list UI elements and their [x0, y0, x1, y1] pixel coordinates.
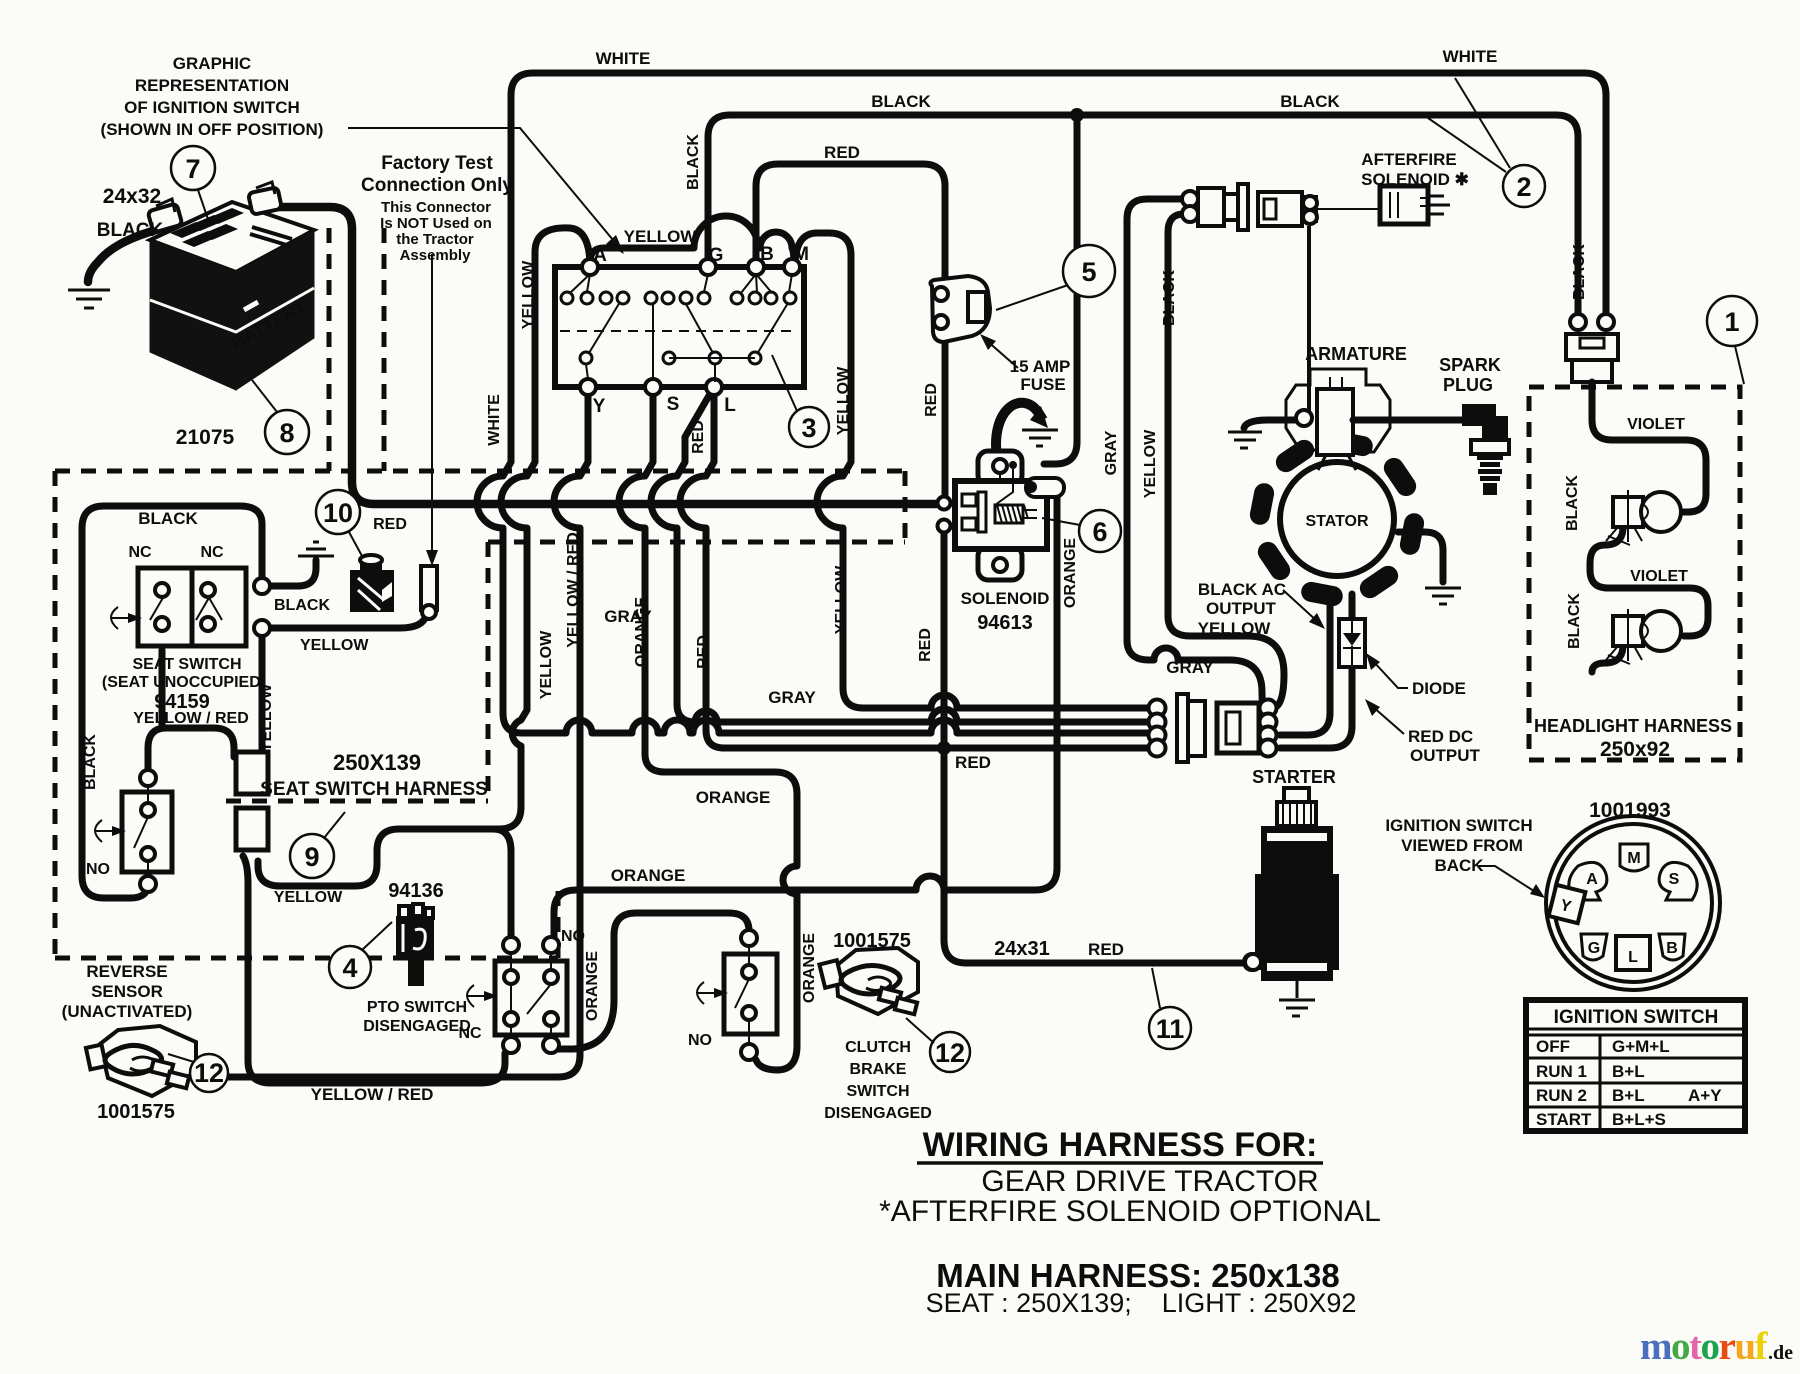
svg-text:RUN 2: RUN 2	[1536, 1086, 1587, 1105]
svg-text:BLACK: BLACK	[274, 597, 330, 614]
svg-text:RED: RED	[1088, 940, 1124, 959]
svg-text:YELLOW: YELLOW	[538, 630, 555, 699]
svg-text:RED: RED	[690, 420, 707, 454]
svg-text:ARMATURE: ARMATURE	[1305, 344, 1407, 364]
svg-text:STATOR: STATOR	[1305, 513, 1369, 530]
svg-text:BLACK: BLACK	[1161, 270, 1178, 326]
svg-text:the Tractor: the Tractor	[396, 231, 474, 248]
svg-text:A: A	[593, 245, 607, 266]
svg-text:BLACK: BLACK	[1564, 475, 1581, 531]
svg-text:GRAY: GRAY	[604, 607, 652, 626]
svg-text:ORANGE: ORANGE	[801, 933, 818, 1004]
svg-text:250x92: 250x92	[1600, 738, 1670, 761]
svg-text:SEAT SWITCH HARNESS: SEAT SWITCH HARNESS	[260, 779, 488, 800]
svg-text:(SEAT UNOCCUPIED): (SEAT UNOCCUPIED)	[102, 674, 266, 691]
svg-text:This Connector: This Connector	[381, 199, 491, 216]
svg-text:SPARK: SPARK	[1439, 355, 1501, 375]
svg-text:L: L	[1628, 949, 1638, 966]
svg-text:BRAKE: BRAKE	[850, 1061, 907, 1078]
svg-text:B: B	[760, 244, 774, 265]
svg-text:G+M+L: G+M+L	[1612, 1037, 1670, 1056]
svg-text:HEADLIGHT HARNESS: HEADLIGHT HARNESS	[1534, 716, 1732, 736]
svg-text:24x32: 24x32	[103, 185, 161, 208]
svg-text:FUSE: FUSE	[1020, 375, 1065, 394]
svg-text:SEAT SWITCH: SEAT SWITCH	[132, 656, 241, 673]
svg-text:BLACK: BLACK	[1566, 593, 1583, 649]
svg-text:1001993: 1001993	[1589, 799, 1671, 822]
svg-text:94136: 94136	[388, 880, 444, 902]
svg-text:7: 7	[185, 154, 200, 184]
svg-text:VIEWED FROM: VIEWED FROM	[1401, 836, 1523, 855]
svg-text:94613: 94613	[977, 612, 1033, 634]
svg-text:IGNITION SWITCH: IGNITION SWITCH	[1385, 816, 1532, 835]
svg-text:RED DC: RED DC	[1408, 727, 1473, 746]
svg-text:A+Y: A+Y	[1688, 1086, 1722, 1105]
svg-text:DISENGAGED: DISENGAGED	[824, 1105, 932, 1122]
svg-text:motoruf: motoruf	[1640, 1325, 1769, 1368]
svg-text:YELLOW / RED: YELLOW / RED	[133, 710, 249, 727]
svg-text:OUTPUT: OUTPUT	[1206, 599, 1277, 618]
svg-text:B+L: B+L	[1612, 1062, 1645, 1081]
svg-text:YELLOW / RED: YELLOW / RED	[311, 1085, 434, 1104]
svg-text:10: 10	[323, 498, 353, 528]
svg-text:RED: RED	[695, 635, 712, 669]
svg-text:SOLENOID: SOLENOID	[961, 589, 1050, 608]
svg-text:BLACK: BLACK	[82, 734, 99, 790]
svg-text:OUTPUT: OUTPUT	[1410, 746, 1481, 765]
svg-text:.de: .de	[1768, 1342, 1793, 1364]
svg-text:YELLOW: YELLOW	[300, 637, 369, 654]
svg-text:BACK: BACK	[1434, 856, 1484, 875]
svg-text:BLACK AC: BLACK AC	[1198, 580, 1286, 599]
svg-text:S: S	[1669, 871, 1680, 888]
svg-text:OF IGNITION SWITCH: OF IGNITION SWITCH	[124, 98, 300, 117]
svg-text:GRAY: GRAY	[1103, 430, 1120, 475]
svg-text:250X139: 250X139	[333, 750, 421, 775]
svg-text:BLACK: BLACK	[871, 92, 931, 111]
svg-text:G: G	[709, 245, 724, 266]
svg-text:1: 1	[1724, 307, 1739, 337]
svg-text:A: A	[1586, 871, 1598, 888]
svg-text:BLACK: BLACK	[97, 220, 164, 241]
svg-text:YELLOW: YELLOW	[835, 366, 852, 435]
svg-text:12: 12	[935, 1038, 965, 1068]
svg-text:G: G	[1588, 940, 1600, 957]
svg-text:GEAR DRIVE TRACTOR: GEAR DRIVE TRACTOR	[981, 1165, 1318, 1198]
svg-text:BLACK: BLACK	[138, 509, 198, 528]
svg-text:NC: NC	[200, 544, 224, 561]
svg-text:BLACK: BLACK	[1571, 244, 1588, 300]
svg-text:ORANGE: ORANGE	[1062, 538, 1079, 609]
svg-text:YELLOW: YELLOW	[833, 565, 850, 634]
svg-text:RUN 1: RUN 1	[1536, 1062, 1587, 1081]
svg-text:DISENGAGED: DISENGAGED	[363, 1018, 471, 1035]
svg-text:L: L	[724, 395, 736, 416]
svg-text:WHITE: WHITE	[596, 49, 651, 68]
svg-text:STARTER: STARTER	[1252, 767, 1336, 787]
svg-text:SENSOR: SENSOR	[91, 982, 163, 1001]
svg-text:4: 4	[342, 953, 357, 983]
svg-text:VIOLET: VIOLET	[1627, 416, 1685, 433]
svg-text:RED: RED	[955, 753, 991, 772]
svg-text:B+L+S: B+L+S	[1612, 1110, 1666, 1129]
svg-text:NC: NC	[458, 1025, 482, 1042]
svg-text:ORANGE: ORANGE	[611, 866, 686, 885]
svg-text:ORANGE: ORANGE	[584, 951, 601, 1022]
svg-text:YELLOW / RED: YELLOW / RED	[565, 532, 582, 648]
svg-text:(SHOWN IN OFF POSITION): (SHOWN IN OFF POSITION)	[101, 120, 324, 139]
svg-text:AFTERFIRE: AFTERFIRE	[1361, 150, 1456, 169]
svg-text:Y: Y	[593, 396, 606, 417]
svg-text:NC: NC	[128, 544, 152, 561]
svg-text:WIRING HARNESS FOR:: WIRING HARNESS FOR:	[923, 1126, 1318, 1164]
svg-text:OFF: OFF	[1536, 1037, 1570, 1056]
svg-text:REPRESENTATION: REPRESENTATION	[135, 76, 289, 95]
svg-text:2: 2	[1516, 172, 1531, 202]
svg-text:(UNACTIVATED): (UNACTIVATED)	[62, 1002, 193, 1021]
svg-text:8: 8	[279, 418, 294, 448]
svg-text:11: 11	[1156, 1014, 1185, 1044]
svg-text:WHITE: WHITE	[1443, 47, 1498, 66]
svg-text:6: 6	[1092, 517, 1107, 547]
svg-text:GRAY: GRAY	[1166, 658, 1214, 677]
svg-text:NO: NO	[86, 861, 110, 878]
svg-text:REVERSE: REVERSE	[86, 962, 167, 981]
svg-text:*AFTERFIRE SOLENOID OPTIONAL: *AFTERFIRE SOLENOID OPTIONAL	[879, 1195, 1381, 1228]
svg-text:PTO SWITCH: PTO SWITCH	[367, 999, 467, 1016]
svg-text:12: 12	[194, 1058, 224, 1088]
svg-text:B: B	[1666, 940, 1678, 957]
svg-text:GRAPHIC: GRAPHIC	[173, 54, 251, 73]
svg-text:Connection Only: Connection Only	[361, 175, 513, 196]
svg-text:RED: RED	[917, 628, 934, 662]
svg-text:Factory Test: Factory Test	[381, 153, 493, 174]
svg-text:1001575: 1001575	[833, 930, 911, 952]
svg-text:Is NOT Used on: Is NOT Used on	[380, 215, 492, 232]
svg-text:RED: RED	[373, 516, 407, 533]
svg-text:9: 9	[304, 842, 319, 872]
svg-text:SWITCH: SWITCH	[846, 1083, 909, 1100]
svg-text:1001575: 1001575	[97, 1101, 175, 1123]
svg-text:VIOLET: VIOLET	[1630, 568, 1688, 585]
svg-text:YELLOW: YELLOW	[520, 260, 537, 329]
svg-text:DIODE: DIODE	[1412, 679, 1466, 698]
svg-text:YELLOW: YELLOW	[274, 889, 343, 906]
svg-text:Assembly: Assembly	[400, 247, 472, 264]
svg-text:START: START	[1536, 1110, 1592, 1129]
svg-text:NO: NO	[688, 1032, 712, 1049]
svg-text:BLACK: BLACK	[1280, 92, 1340, 111]
svg-text:NO: NO	[561, 928, 585, 945]
svg-text:GRAY: GRAY	[768, 688, 816, 707]
svg-text:M: M	[793, 244, 809, 265]
svg-text:BLACK: BLACK	[685, 134, 702, 190]
svg-text:IGNITION SWITCH: IGNITION SWITCH	[1554, 1007, 1719, 1028]
svg-text:YELLOW: YELLOW	[624, 227, 698, 246]
svg-text:24x31: 24x31	[994, 938, 1050, 960]
svg-text:RED: RED	[923, 383, 940, 417]
svg-text:B+L: B+L	[1612, 1086, 1645, 1105]
svg-text:RED: RED	[824, 143, 860, 162]
svg-text:PLUG: PLUG	[1443, 375, 1493, 395]
svg-text:CLUTCH: CLUTCH	[845, 1039, 911, 1056]
svg-text:YELLOW: YELLOW	[1142, 429, 1159, 498]
svg-text:WHITE: WHITE	[486, 394, 503, 446]
svg-text:YELLOW: YELLOW	[258, 683, 275, 752]
svg-text:21075: 21075	[176, 426, 235, 449]
svg-text:M: M	[1627, 850, 1640, 867]
svg-text:YELLOW: YELLOW	[1198, 619, 1272, 638]
svg-text:3: 3	[801, 413, 816, 443]
svg-text:SOLENOID ✱: SOLENOID ✱	[1361, 170, 1469, 189]
svg-text:S: S	[667, 394, 680, 415]
svg-text:SEAT : 250X139; LIGHT : 250: SEAT : 250X139; LIGHT : 250X92	[926, 1288, 1357, 1318]
svg-text:5: 5	[1081, 257, 1096, 287]
svg-text:ORANGE: ORANGE	[696, 788, 771, 807]
svg-text:15 AMP: 15 AMP	[1010, 357, 1071, 376]
